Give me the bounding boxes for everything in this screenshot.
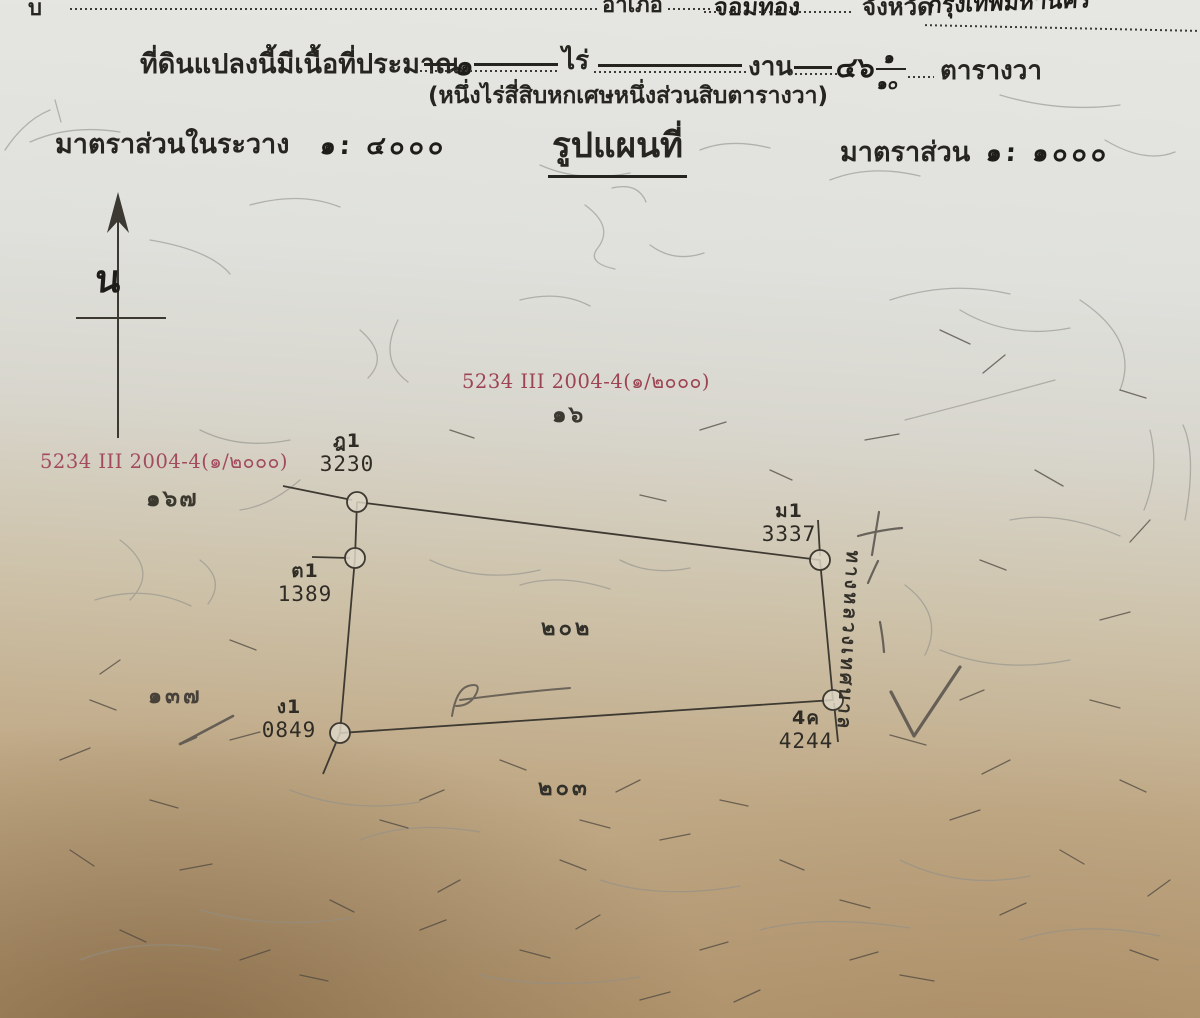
sheet-ref-left: 5234 III 2004-4(๑/๒๐๐๐) xyxy=(40,446,288,477)
rai-label: ไร่ xyxy=(562,40,589,81)
sheet-scale-value: ๑: ๔๐๐๐ xyxy=(319,126,449,166)
dotted-line xyxy=(790,73,838,75)
map-scale-value: ๑: ๑๐๐๐ xyxy=(985,133,1112,173)
district-label: อำเภอ xyxy=(602,0,663,22)
corner-id: ฎ1 xyxy=(316,430,378,453)
paper-fibers xyxy=(60,330,1170,1002)
blank-line xyxy=(598,64,742,67)
wa-fraction-denominator: ๑๐ xyxy=(876,70,899,97)
sheet-scale-label: มาตราส่วนในระวาง xyxy=(55,122,289,165)
land-deed-map-page: บ อำเภอ จอมทอง จังหวัด กรุงเทพมหานคร ที่… xyxy=(0,0,1200,1018)
wa-whole-value: ๔๖ xyxy=(834,46,876,90)
corner-number: 0849 xyxy=(260,719,318,742)
header-left-fragment: บ xyxy=(28,0,42,25)
district-value: จอมทอง xyxy=(713,0,802,26)
sheet-ref-left-note: ๑๖๗ xyxy=(146,481,199,517)
map-scale-label: มาตราส่วน xyxy=(840,130,970,173)
blank-line xyxy=(474,63,558,66)
corner-number: 3337 xyxy=(758,523,820,546)
plot-number-south: ๒๐๓ xyxy=(538,770,590,805)
corner-id: ง1 xyxy=(260,696,318,719)
loop-pen-stroke xyxy=(452,685,570,716)
north-arrow xyxy=(76,192,166,438)
map-title: รูปแผนที่ xyxy=(548,118,687,178)
pencil-squiggles xyxy=(5,95,1191,984)
province-label: จังหวัด xyxy=(862,0,933,26)
dotted-line xyxy=(668,8,712,10)
corner-label-ne: ม1 3337 xyxy=(758,500,820,546)
dotted-line xyxy=(420,70,560,72)
arrow-pen-stroke xyxy=(180,716,233,744)
plot-number-west: ๑๓๗ xyxy=(148,678,203,713)
corner-label-west: ต1 1389 xyxy=(276,560,334,606)
sheet-ref-center: 5234 III 2004-4(๑/๒๐๐๐) xyxy=(462,366,710,397)
plot-number-center: ๒๐๒ xyxy=(541,610,592,645)
area-prefix: ที่ดินแปลงนี้มีเนื้อที่ประมาณ xyxy=(140,42,460,85)
corner-label-se: 4ค 4244 xyxy=(774,707,838,753)
north-letter: น xyxy=(93,248,123,309)
area-spelled-out: (หนึ่งไร่สี่สิบหกเศษหนึ่งส่วนสิบตารางวา) xyxy=(428,78,828,114)
checkmark-pen-stroke xyxy=(891,667,960,736)
wa-label: ตารางวา xyxy=(940,50,1042,91)
corner-id: ม1 xyxy=(758,500,820,523)
dotted-line xyxy=(908,76,934,78)
dotted-line xyxy=(704,11,854,13)
corner-label-nw: ฎ1 3230 xyxy=(316,430,378,476)
dotted-line xyxy=(70,8,598,10)
corner-label-sw: ง1 0849 xyxy=(260,696,318,742)
sheet-ref-center-note: ๑๖ xyxy=(552,397,585,433)
dotted-line xyxy=(594,71,746,73)
corner-id: ต1 xyxy=(276,560,334,583)
blank-line xyxy=(794,66,832,69)
corner-number: 4244 xyxy=(774,730,838,753)
corner-number: 1389 xyxy=(276,583,334,606)
blank-line xyxy=(424,63,454,66)
corner-number: 3230 xyxy=(316,453,378,476)
wa-fraction-numerator: ๑ xyxy=(883,44,896,71)
